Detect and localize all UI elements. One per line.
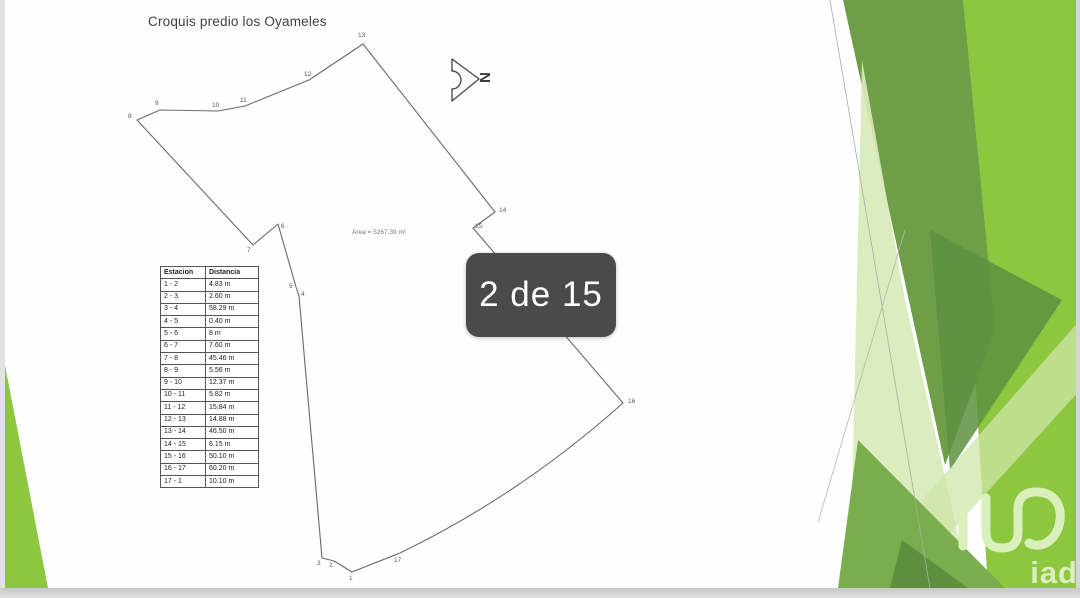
gallery-counter-badge: 2 de 15 — [466, 253, 616, 337]
listing-photo-slide[interactable]: Croquis predio los Oyameles N Area = 526… — [0, 0, 1080, 598]
iad-logo-text: iad — [1000, 555, 1078, 591]
